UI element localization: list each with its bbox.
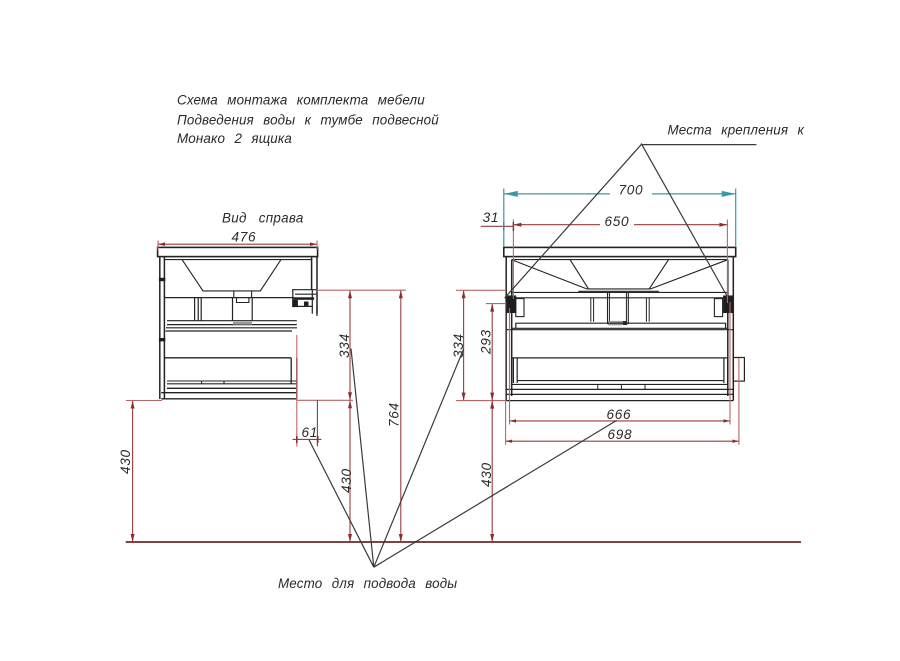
svg-text:430: 430 — [339, 468, 354, 493]
svg-text:Место для подвода воды: Место для подвода воды — [278, 576, 457, 591]
svg-text:764: 764 — [387, 402, 402, 427]
svg-text:698: 698 — [608, 427, 633, 442]
svg-text:430: 430 — [118, 449, 133, 474]
svg-text:334: 334 — [337, 333, 352, 358]
svg-text:334: 334 — [451, 333, 466, 358]
svg-text:293: 293 — [479, 329, 494, 355]
svg-text:61: 61 — [302, 425, 319, 440]
svg-text:650: 650 — [605, 214, 630, 229]
svg-text:700: 700 — [619, 183, 644, 198]
svg-text:Места крепления к: Места крепления к — [668, 123, 805, 138]
svg-text:476: 476 — [232, 229, 257, 244]
svg-text:666: 666 — [607, 407, 632, 422]
svg-text:Подведения воды к тумбе по: Подведения воды к тумбе подвесной — [177, 113, 439, 128]
svg-text:Монако 2 ящика: Монако 2 ящика — [177, 131, 292, 146]
svg-text:31: 31 — [483, 210, 500, 225]
svg-text:430: 430 — [479, 462, 494, 487]
svg-text:Вид справа: Вид справа — [222, 211, 304, 226]
svg-text:Схема монтажа комплекта меб: Схема монтажа комплекта мебели — [177, 93, 425, 108]
